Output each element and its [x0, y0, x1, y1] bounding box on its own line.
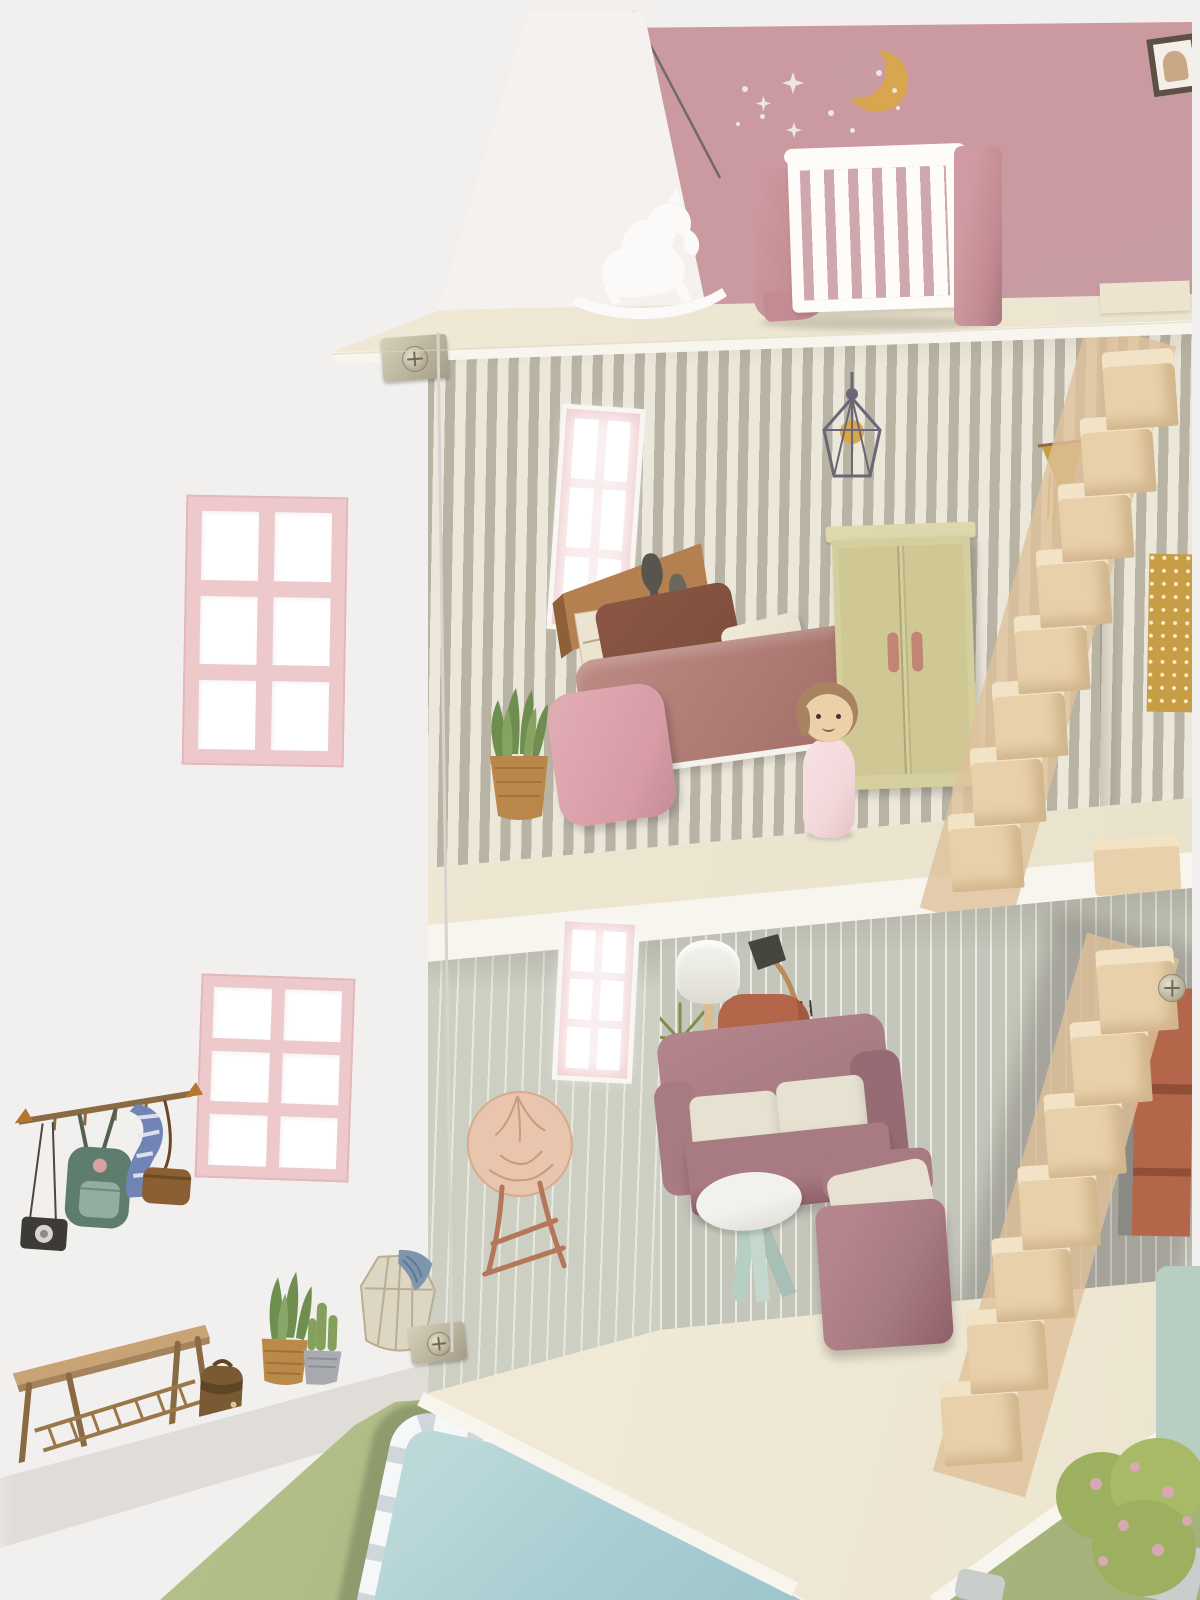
door-upper-window	[182, 495, 349, 768]
bottom-hinge	[408, 1321, 468, 1365]
dollhouse-photo	[0, 0, 1200, 1600]
door-lower-window	[194, 973, 355, 1182]
coat-rack-decal	[2, 1066, 208, 1319]
